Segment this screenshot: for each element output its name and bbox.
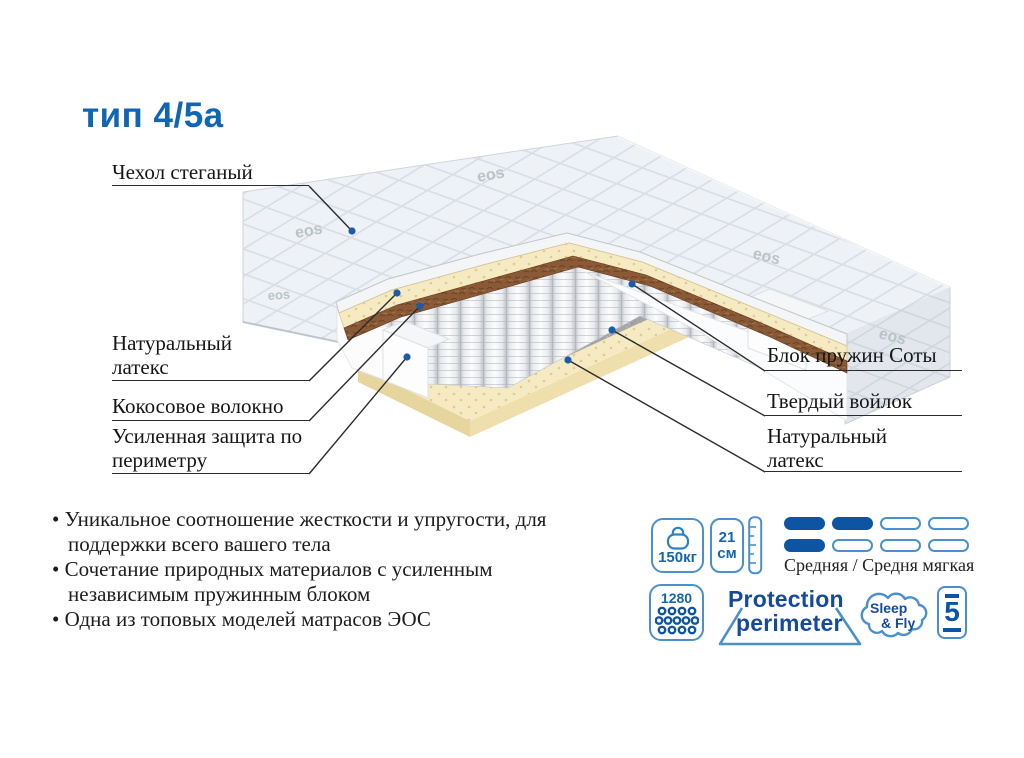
warranty-value: 5 xyxy=(939,596,965,628)
label-cover-underline xyxy=(112,185,309,186)
firmness-caption: Средняя / Средня мягкая xyxy=(784,555,974,576)
firmness-pill xyxy=(880,517,921,530)
label-perimeter: Усиленная защита по периметру xyxy=(112,424,337,472)
feature-item: Одна из топовых моделей матрасов ЭОС xyxy=(52,607,582,632)
protection-perimeter-logo: Protection perimeter xyxy=(712,586,872,648)
brand-line1: Sleep xyxy=(870,600,907,616)
firmness-pill xyxy=(784,517,825,530)
warranty-badge: 5 xyxy=(937,586,967,639)
springs-dots-icon xyxy=(655,606,699,636)
brand-line2: & Fly xyxy=(881,615,915,631)
label-perimeter-underline xyxy=(112,473,309,474)
target-dot-latex-right xyxy=(564,356,571,363)
firmness-pill xyxy=(928,517,969,530)
firmness-pill xyxy=(784,539,825,552)
label-coir: Кокосовое волокно xyxy=(112,394,342,418)
fabric-logo: eos xyxy=(267,286,290,303)
springs-count-value: 1280 xyxy=(661,590,692,606)
firmness-pill xyxy=(880,539,921,552)
label-coir-underline xyxy=(112,420,309,421)
height-badge: 21 см xyxy=(710,518,744,573)
ruler-icon xyxy=(748,516,763,575)
label-felt: Твердый войлок xyxy=(767,389,987,413)
warranty-bottom-bar xyxy=(943,628,961,632)
leader-line-latex-right xyxy=(568,360,765,472)
label-latex-right: Натуральный латекс xyxy=(767,424,917,472)
label-latex-left: Натуральный латекс xyxy=(112,331,262,379)
height-value: 21 xyxy=(719,530,736,546)
firmness-pill xyxy=(928,539,969,552)
springs-count-badge: 1280 xyxy=(649,584,704,641)
label-springs-underline xyxy=(765,370,962,371)
label-felt-underline xyxy=(765,415,962,416)
page-title: тип 4/5а xyxy=(82,96,224,136)
target-dot-felt xyxy=(608,326,615,333)
target-dot-cover xyxy=(348,227,355,234)
feature-item: Сочетание природных материалов с усиленн… xyxy=(52,557,582,607)
target-dot-perimeter xyxy=(403,353,410,360)
target-dot-coir xyxy=(416,302,423,309)
target-dot-springs xyxy=(628,280,635,287)
label-springs: Блок пружин Соты xyxy=(767,343,987,367)
kettlebell-icon xyxy=(665,526,691,550)
firmness-pill xyxy=(832,539,873,552)
label-cover: Чехол стеганый xyxy=(112,160,332,184)
target-dot-latex-left xyxy=(393,289,400,296)
protection-line2: perimeter xyxy=(736,612,843,635)
feature-item: Уникальное соотношение жесткости и упруг… xyxy=(52,507,582,557)
infographic-page: { "title": "тип 4/5а", "fabric_logo": "e… xyxy=(0,0,1024,758)
feature-list: Уникальное соотношение жесткости и упруг… xyxy=(52,507,582,632)
max-weight-badge: 150кг xyxy=(651,518,704,573)
brand-logo: Sleep & Fly xyxy=(855,586,930,642)
protection-line1: Protection xyxy=(728,588,844,611)
label-latex-left-underline xyxy=(112,380,309,381)
height-unit: см xyxy=(717,546,736,562)
firmness-scale xyxy=(784,517,969,552)
label-latex-right-underline xyxy=(765,471,962,472)
max-weight-value: 150кг xyxy=(658,550,697,566)
firmness-pill xyxy=(832,517,873,530)
